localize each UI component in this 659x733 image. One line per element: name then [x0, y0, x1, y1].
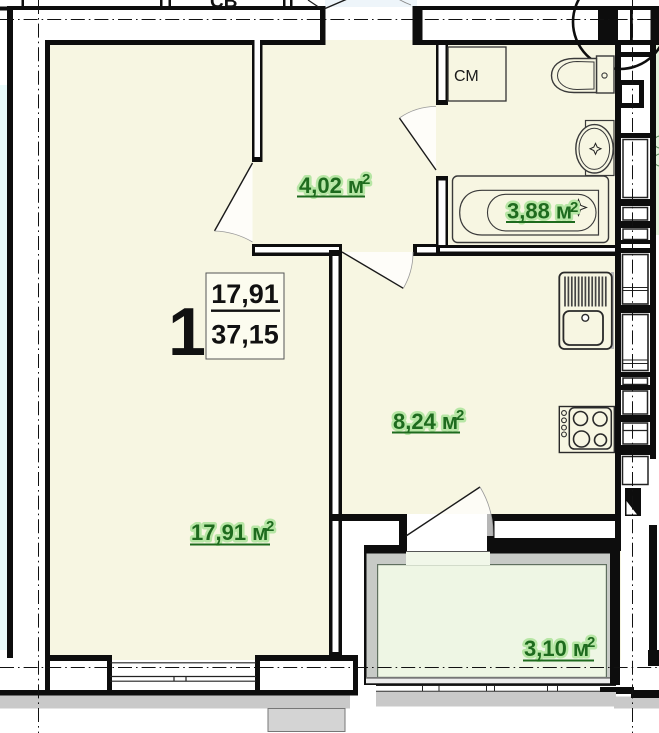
svg-text:2: 2 — [587, 634, 595, 651]
svg-text:2: 2 — [456, 407, 464, 424]
svg-text:СВ: СВ — [210, 0, 237, 13]
svg-text:8,24 м: 8,24 м — [393, 409, 458, 434]
svg-text:СМ: СМ — [454, 68, 479, 85]
svg-text:1: 1 — [168, 294, 206, 370]
svg-text:2: 2 — [362, 171, 370, 188]
svg-text:2: 2 — [266, 518, 274, 535]
svg-text:17,91 м: 17,91 м — [191, 520, 268, 545]
svg-text:2: 2 — [570, 199, 578, 216]
svg-text:3,10 м: 3,10 м — [524, 636, 589, 661]
svg-text:17,91: 17,91 — [211, 279, 279, 309]
svg-text:37,15: 37,15 — [211, 320, 279, 350]
svg-text:4,02 м: 4,02 м — [299, 173, 364, 198]
svg-text:3,88 м: 3,88 м — [507, 199, 572, 224]
